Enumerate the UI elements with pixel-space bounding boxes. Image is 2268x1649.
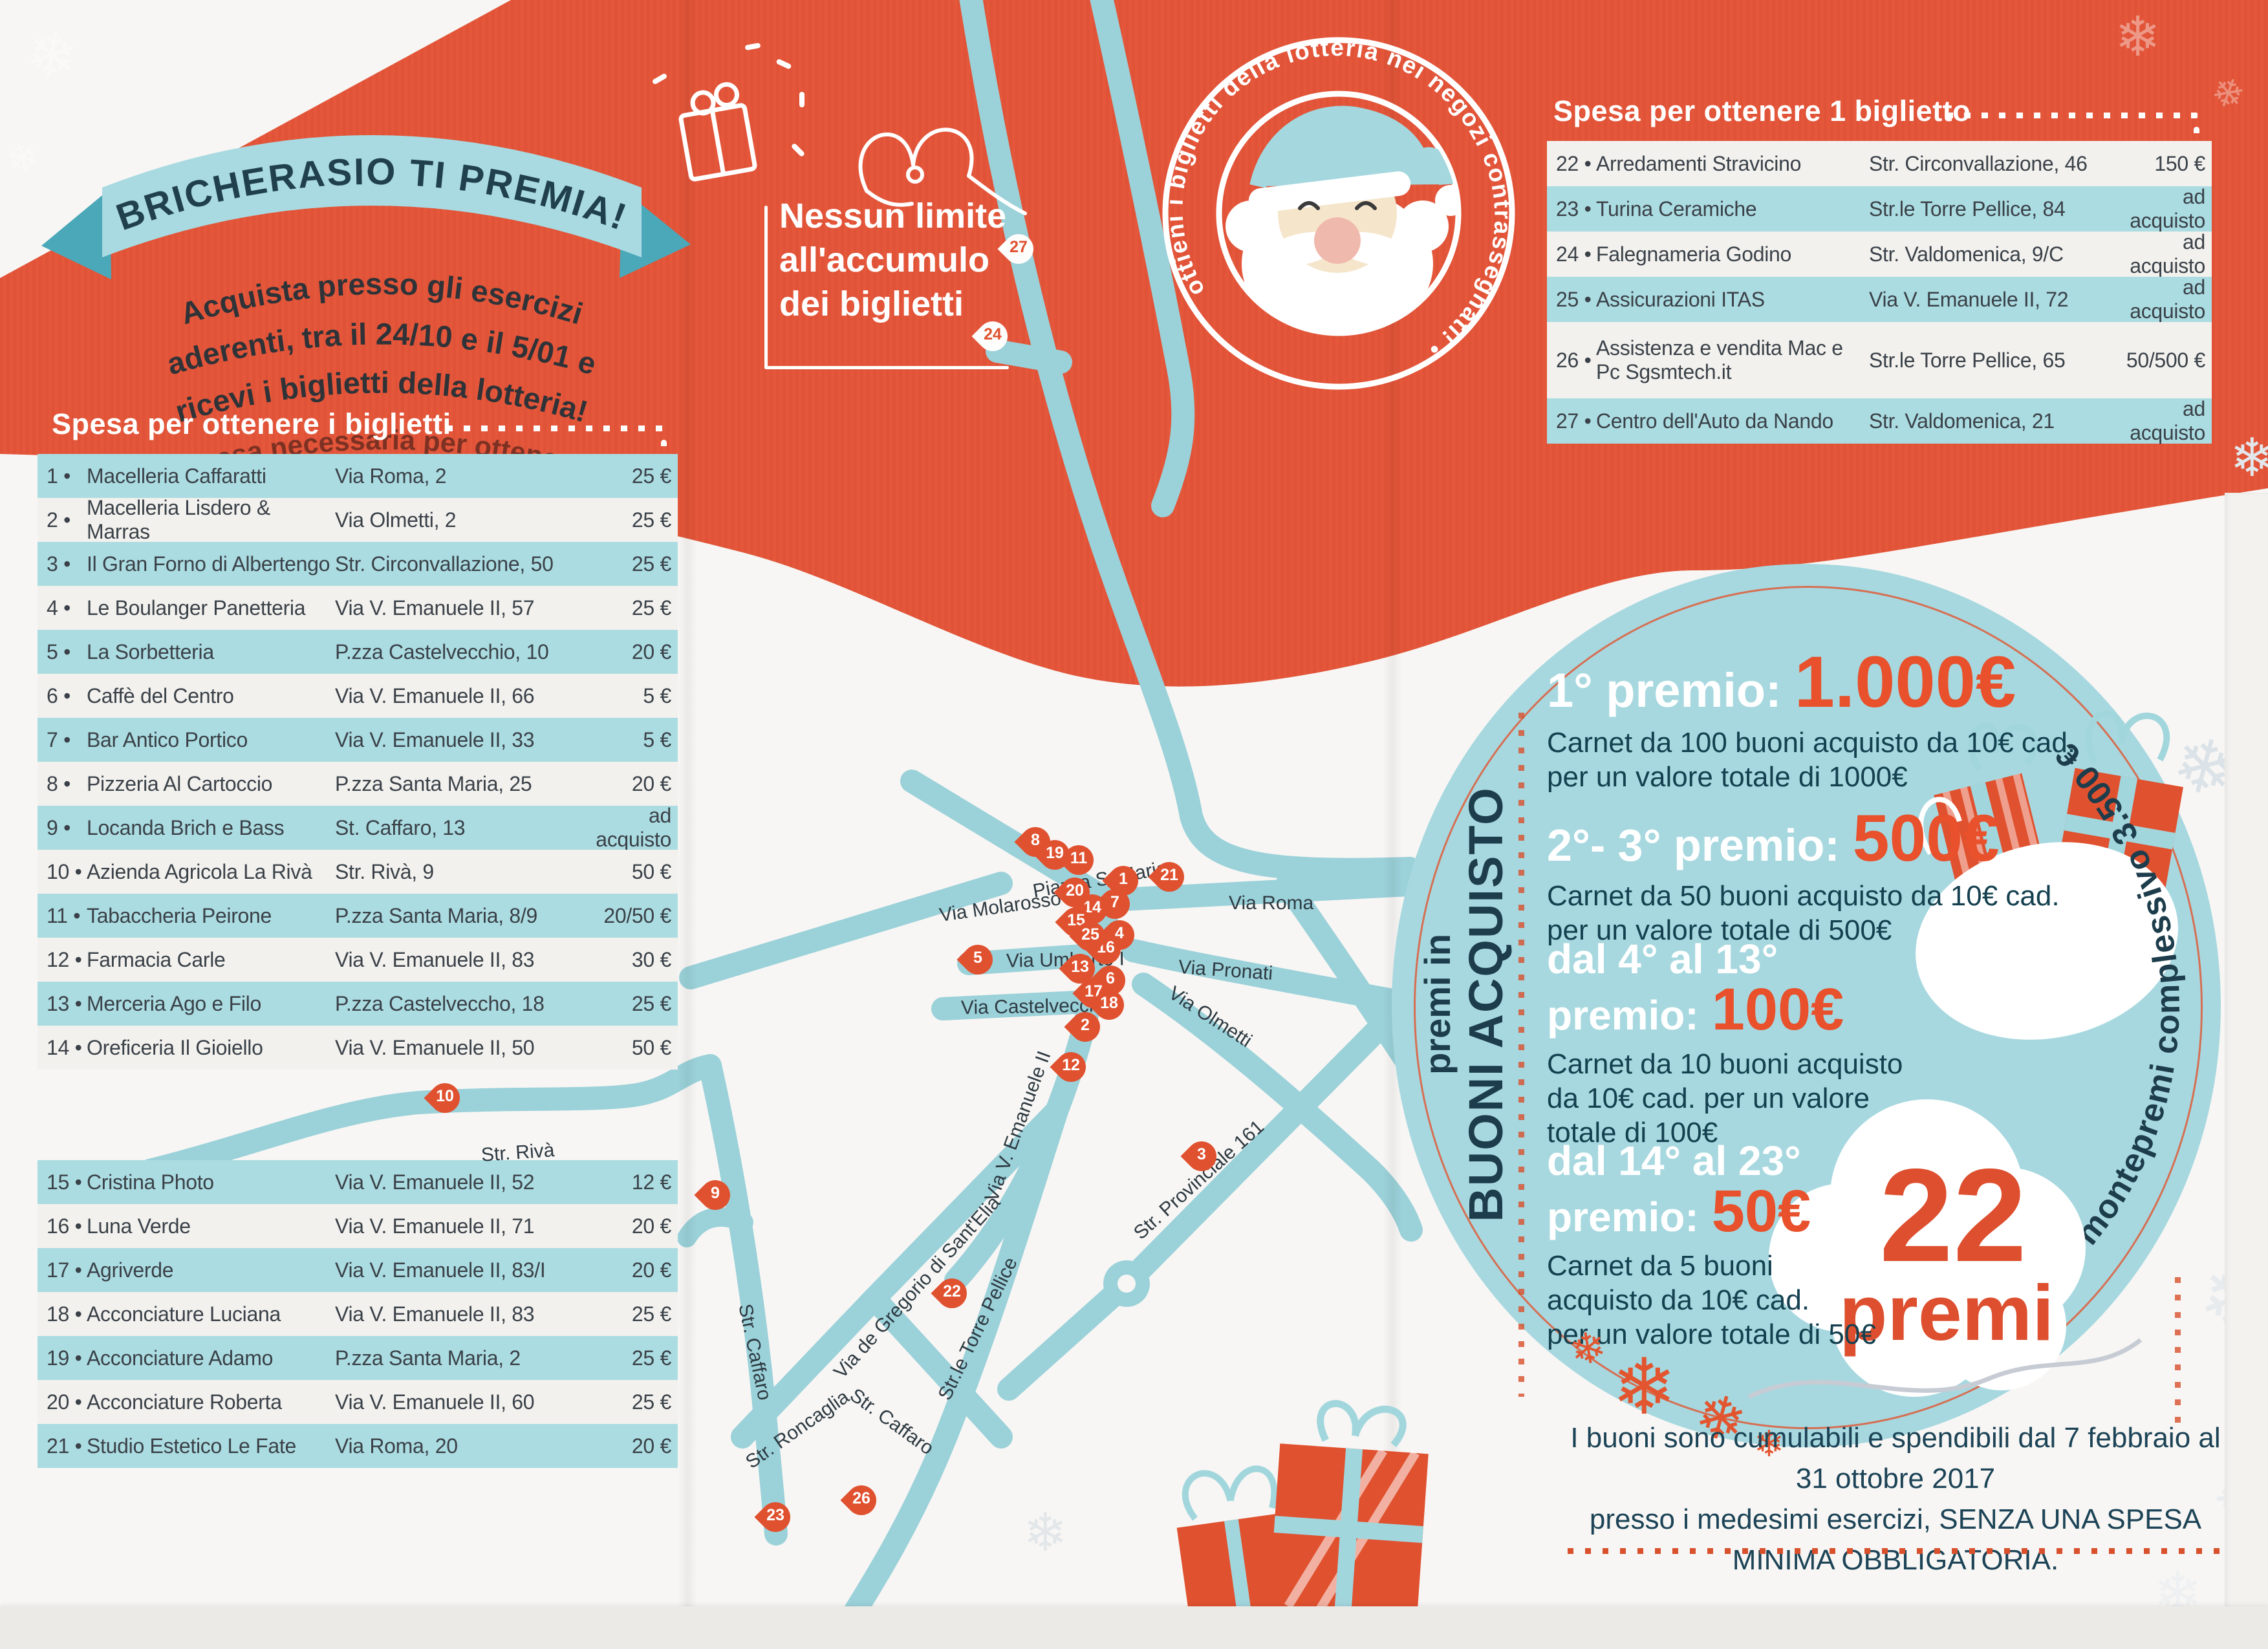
shop-address: St. Caffaro, 13: [335, 816, 576, 840]
prize-description: Carnet da 100 buoni acquisto da 10€ cad.…: [1547, 726, 2075, 794]
shop-price: 50 €: [576, 1036, 671, 1060]
shop-number: 8: [47, 772, 83, 796]
prize-description: Carnet da 10 buoni acquisto da 10€ cad. …: [1547, 1047, 1903, 1150]
shop-address: Str. Valdomenica, 21: [1869, 409, 2110, 433]
shop-price: 25 €: [576, 992, 671, 1016]
shop-number: 2: [47, 508, 83, 532]
shop-address: Str.le Torre Pellice, 84: [1869, 197, 2110, 221]
paper-edge-right: [2225, 493, 2268, 1649]
prize-block-1: 1° premio: 1.000€ Carnet da 100 buoni ac…: [1547, 648, 2075, 794]
shop-price: ad acquisto: [2110, 185, 2205, 233]
shop-number: 10: [47, 860, 83, 884]
shop-row: 4 Le Boulanger Panetteria Via V. Emanuel…: [38, 586, 678, 630]
shop-price: 25 €: [576, 464, 671, 488]
shop-address: Via V. Emanuele II, 83: [335, 948, 576, 972]
shop-name: Acconciature Adamo: [83, 1346, 335, 1370]
shop-name: Arredamenti Stravicino: [1592, 152, 1869, 176]
shop-row: 23 Turina Ceramiche Str.le Torre Pellice…: [1547, 186, 2212, 232]
prize-title: 2°- 3° premio:: [1547, 822, 1840, 870]
shop-number: 13: [47, 992, 83, 1016]
shop-number: 14: [47, 1036, 83, 1060]
shop-number: 27: [1556, 409, 1592, 433]
shop-price: 50 €: [576, 860, 671, 884]
prize-title-extra: dal 4° al 13°: [1547, 938, 1903, 982]
shop-row: 16 Luna Verde Via V. Emanuele II, 71 20 …: [38, 1204, 678, 1248]
shop-row: 26 Assistenza e vendita Mac e Pc Sgsmtec…: [1547, 322, 2212, 398]
shop-price: ad acquisto: [576, 804, 671, 852]
shops-list-right: 22 Arredamenti Stravicino Str. Circonval…: [1547, 141, 2212, 444]
gift-doodle-icon: [676, 82, 755, 180]
shop-row: 12 Farmacia Carle Via V. Emanuele II, 83…: [38, 938, 678, 982]
shop-name: Pizzeria Al Cartoccio: [83, 772, 335, 796]
shop-price: 20/50 €: [576, 904, 671, 928]
shop-price: 25 €: [576, 596, 671, 620]
shop-row: 27 Centro dell'Auto da Nando Str. Valdom…: [1547, 398, 2212, 444]
footer-dotted-line: [1568, 1548, 2247, 1554]
shop-address: Via V. Emanuele II, 52: [335, 1170, 576, 1194]
right-header-dots: [1947, 113, 2199, 118]
shop-price: ad acquisto: [2110, 397, 2205, 445]
shop-row: 2 Macelleria Lisdero & Marras Via Olmett…: [38, 498, 678, 542]
shop-price: 150 €: [2110, 152, 2205, 176]
shop-name: Agriverde: [83, 1258, 335, 1282]
shop-price: 20 €: [576, 640, 671, 664]
prize-count: 22: [1879, 1141, 2027, 1289]
right-list-header: Spesa per ottenere 1 biglietto: [1553, 94, 1971, 128]
shop-name: Oreficeria Il Gioiello: [83, 1036, 335, 1060]
shop-address: Via V. Emanuele II, 83/I: [335, 1258, 576, 1282]
shop-row: 19 Acconciature Adamo P.zza Santa Maria,…: [38, 1336, 678, 1380]
note-line: dei biglietti: [779, 282, 1006, 326]
shop-row: 22 Arredamenti Stravicino Str. Circonval…: [1547, 141, 2212, 186]
shop-name: Bar Antico Portico: [83, 728, 335, 752]
shop-row: 8 Pizzeria Al Cartoccio P.zza Santa Mari…: [38, 762, 678, 806]
shop-number: 21: [47, 1434, 83, 1458]
shop-row: 6 Caffè del Centro Via V. Emanuele II, 6…: [38, 674, 678, 718]
shop-name: Caffè del Centro: [83, 684, 335, 708]
prize-desc-line: Carnet da 10 buoni acquisto: [1547, 1047, 1903, 1081]
prize-desc-line: Carnet da 5 buoni: [1547, 1249, 1876, 1283]
shop-number: 5: [47, 640, 83, 664]
footer-line: presso i medesimi esercizi, SENZA UNA SP…: [1552, 1499, 2239, 1580]
prize-description: Carnet da 5 buoni acquisto da 10€ cad. p…: [1547, 1249, 1876, 1352]
shop-row: 25 Assicurazioni ITAS Via V. Emanuele II…: [1547, 277, 2212, 322]
shop-price: 20 €: [576, 772, 671, 796]
shops-list-left: 1 Macelleria Caffaratti Via Roma, 2 25 €…: [38, 454, 678, 1468]
shop-row: 15 Cristina Photo Via V. Emanuele II, 52…: [38, 1160, 678, 1204]
shop-address: P.zza Castelvecchio, 10: [335, 640, 576, 664]
shop-row: 14 Oreficeria Il Gioiello Via V. Emanuel…: [38, 1026, 678, 1070]
shop-number: 12: [47, 948, 83, 972]
shop-name: La Sorbetteria: [83, 640, 335, 664]
prize-value: 100€: [1712, 982, 1844, 1038]
shop-number: 20: [47, 1390, 83, 1414]
shop-name: Farmacia Carle: [83, 948, 335, 972]
shop-number: 26: [1556, 349, 1592, 372]
prize-block-4: dal 14° al 23° premio: 50€ Carnet da 5 b…: [1547, 1139, 1876, 1352]
no-limit-note: Nessun limite all'accumulo dei biglietti: [779, 194, 1006, 326]
shop-address: Via V. Emanuele II, 71: [335, 1214, 576, 1238]
shop-number: 3: [47, 552, 83, 576]
note-line: Nessun limite: [779, 194, 1006, 238]
note-bracket-horizontal: [764, 366, 1009, 369]
side-label-line1: premi in: [1416, 697, 1458, 1311]
shop-name: Studio Estetico Le Fate: [83, 1434, 335, 1458]
prizes-side-label: premi in BUONI ACQUISTO: [1416, 697, 1513, 1311]
prize-desc-line: per un valore totale di 50€: [1547, 1317, 1876, 1352]
shop-number: 22: [1556, 152, 1592, 176]
shop-name: Azienda Agricola La Rivà: [83, 860, 335, 884]
footer-line: I buoni sono cumulabili e spendibili dal…: [1552, 1417, 2239, 1499]
shop-row: 21 Studio Estetico Le Fate Via Roma, 20 …: [38, 1424, 678, 1468]
shop-price: 25 €: [576, 1390, 671, 1414]
shop-name: Assicurazioni ITAS: [1592, 288, 1869, 312]
shop-row: 18 Acconciature Luciana Via V. Emanuele …: [38, 1292, 678, 1336]
shop-address: Str.le Torre Pellice, 65: [1869, 349, 2110, 372]
shop-address: P.zza Santa Maria, 25: [335, 772, 576, 796]
shop-name: Acconciature Roberta: [83, 1390, 335, 1414]
shop-price: 20 €: [576, 1434, 671, 1458]
shop-name: Cristina Photo: [83, 1170, 335, 1194]
shop-price: 5 €: [576, 684, 671, 708]
shop-number: 11: [47, 904, 83, 928]
shop-name: Acconciature Luciana: [83, 1302, 335, 1326]
shop-number: 15: [47, 1170, 83, 1194]
left-header-dots: [446, 426, 666, 431]
prize-title: 1° premio:: [1547, 665, 1782, 716]
shop-number: 25: [1556, 288, 1592, 312]
shop-price: 50/500 €: [2110, 349, 2205, 372]
sparkle-dashes: [652, 43, 806, 157]
shop-row: 10 Azienda Agricola La Rivà Str. Rivà, 9…: [38, 850, 678, 894]
shop-name: Turina Ceramiche: [1592, 197, 1869, 221]
shop-address: Via Olmetti, 2: [335, 508, 576, 532]
shop-price: 25 €: [576, 1302, 671, 1326]
shop-name: Falegnameria Godino: [1592, 242, 1869, 266]
prize-title: premio:: [1547, 1196, 1699, 1239]
shop-price: 5 €: [576, 728, 671, 752]
shop-name: Centro dell'Auto da Nando: [1592, 409, 1869, 433]
shop-price: 25 €: [576, 1346, 671, 1370]
shop-address: P.zza Castelveccho, 18: [335, 992, 576, 1016]
shop-row: 13 Merceria Ago e Filo P.zza Castelvecch…: [38, 982, 678, 1026]
shop-number: 19: [47, 1346, 83, 1370]
shop-number: 6: [47, 684, 83, 708]
note-line: all'accumulo: [779, 238, 1006, 282]
shop-price: 25 €: [576, 552, 671, 576]
left-list-header: Spesa per ottenere i biglietti: [52, 407, 451, 441]
shop-address: Via Roma, 20: [335, 1434, 576, 1458]
prize-title: premio:: [1547, 994, 1699, 1037]
shop-address: Str. Rivà, 9: [335, 860, 576, 884]
shop-number: 16: [47, 1214, 83, 1238]
shop-price: 25 €: [576, 508, 671, 532]
shop-row: 9 Locanda Brich e Bass St. Caffaro, 13 a…: [38, 806, 678, 850]
shop-row: 5 La Sorbetteria P.zza Castelvecchio, 10…: [38, 630, 678, 674]
shop-number: 17: [47, 1258, 83, 1282]
shop-address: Via V. Emanuele II, 66: [335, 684, 576, 708]
shop-price: ad acquisto: [2110, 275, 2205, 323]
shop-number: 9: [47, 816, 83, 840]
shop-row: 3 Il Gran Forno di Albertengo Str. Circo…: [38, 542, 678, 586]
shop-name: Le Boulanger Panetteria: [83, 596, 335, 620]
shop-price: ad acquisto: [2110, 230, 2205, 278]
fold-dots-left: [1518, 713, 1524, 1397]
note-bracket-vertical: [764, 206, 768, 369]
shop-name: Macelleria Lisdero & Marras: [83, 496, 335, 544]
shop-address: P.zza Santa Maria, 8/9: [335, 904, 576, 928]
shop-address: Str. Circonvallazione, 46: [1869, 152, 2110, 176]
shop-address: Via V. Emanuele II, 33: [335, 728, 576, 752]
shop-number: 24: [1556, 242, 1592, 266]
ribbon-tail-left: [41, 189, 111, 279]
shop-row: 17 Agriverde Via V. Emanuele II, 83/I 20…: [38, 1248, 678, 1292]
shop-number: 7: [47, 728, 83, 752]
paper-edge-bottom: [0, 1606, 2268, 1649]
shop-address: Via V. Emanuele II, 60: [335, 1390, 576, 1414]
prize-desc-line: Carnet da 100 buoni acquisto da 10€ cad.: [1547, 726, 2075, 760]
shop-address: Via V. Emanuele II, 72: [1869, 288, 2110, 312]
shop-name: Il Gran Forno di Albertengo: [83, 552, 335, 576]
shop-address: Str. Circonvallazione, 50: [335, 552, 576, 576]
shop-address: Str. Valdomenica, 9/C: [1869, 242, 2110, 266]
side-label-line2: BUONI ACQUISTO: [1458, 697, 1513, 1311]
footer-terms: I buoni sono cumulabili e spendibili dal…: [1552, 1417, 2239, 1580]
shop-price: 12 €: [576, 1170, 671, 1194]
shop-address: Via V. Emanuele II, 50: [335, 1036, 576, 1060]
prize-title-extra: dal 14° al 23°: [1547, 1139, 1876, 1183]
prize-desc-line: Carnet da 50 buoni acquisto da 10€ cad.: [1547, 879, 2060, 913]
prize-value: 50€: [1712, 1183, 1811, 1240]
shop-row: 24 Falegnameria Godino Str. Valdomenica,…: [1547, 232, 2212, 277]
santa-stamp: ottieni i biglietti della lotteria nei n…: [1145, 19, 1533, 420]
shop-row: 20 Acconciature Roberta Via V. Emanuele …: [38, 1380, 678, 1424]
shop-name: Macelleria Caffaratti: [83, 464, 335, 488]
brochure-page: montepremi complessivo 3.500 € 22 premi …: [0, 0, 2268, 1649]
shop-price: 20 €: [576, 1214, 671, 1238]
shop-address: Via V. Emanuele II, 57: [335, 596, 576, 620]
shop-name: Tabaccheria Peirone: [83, 904, 335, 928]
shop-name: Assistenza e vendita Mac e Pc Sgsmtech.i…: [1592, 336, 1869, 384]
prize-value: 500€: [1853, 807, 2000, 870]
prize-value: 1.000€: [1795, 648, 2016, 717]
shop-row: 7 Bar Antico Portico Via V. Emanuele II,…: [38, 718, 678, 762]
prize-block-3: dal 4° al 13° premio: 100€ Carnet da 10 …: [1547, 938, 1903, 1150]
prize-desc-line: acquisto da 10€ cad.: [1547, 1283, 1876, 1317]
shop-address: P.zza Santa Maria, 2: [335, 1346, 576, 1370]
prize-desc-line: per un valore totale di 1000€: [1547, 760, 2075, 794]
shop-number: 23: [1556, 197, 1592, 221]
shop-row: 1 Macelleria Caffaratti Via Roma, 2 25 €: [38, 454, 678, 498]
shop-name: Luna Verde: [83, 1214, 335, 1238]
shop-number: 4: [47, 596, 83, 620]
shop-name: Merceria Ago e Filo: [83, 992, 335, 1016]
shop-number: 18: [47, 1302, 83, 1326]
shop-price: 20 €: [576, 1258, 671, 1282]
shop-name: Locanda Brich e Bass: [83, 816, 335, 840]
shop-number: 1: [47, 464, 83, 488]
shop-address: Via Roma, 2: [335, 464, 576, 488]
fold-dots-right: [2175, 1277, 2181, 1431]
shop-row: 11 Tabaccheria Peirone P.zza Santa Maria…: [38, 894, 678, 938]
shop-price: 30 €: [576, 948, 671, 972]
prize-block-2: 2°- 3° premio: 500€ Carnet da 50 buoni a…: [1547, 807, 2060, 947]
shop-address: Via V. Emanuele II, 83: [335, 1302, 576, 1326]
roundabout-center: [1118, 1275, 1136, 1293]
prize-desc-line: da 10€ cad. per un valore: [1547, 1081, 1903, 1115]
